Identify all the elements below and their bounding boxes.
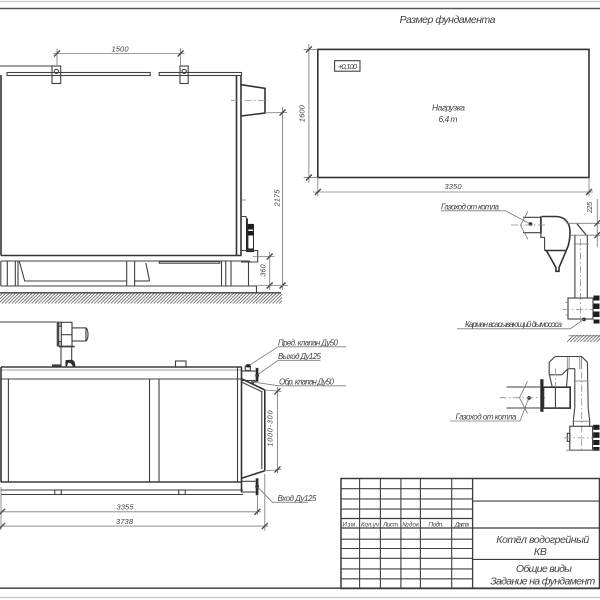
svg-text:Котёл водогрейный: Котёл водогрейный (496, 534, 589, 546)
svg-text:Кол.уч: Кол.уч (361, 521, 380, 528)
svg-text:3350: 3350 (445, 182, 463, 191)
svg-text:Вход Ду125: Вход Ду125 (278, 494, 318, 503)
svg-text:Лист: Лист (382, 521, 398, 528)
svg-text:6,4 т: 6,4 т (439, 114, 458, 124)
svg-text:1500: 1500 (112, 45, 130, 54)
svg-text:Карман всасывающий дымососа: Карман всасывающий дымососа (465, 320, 563, 329)
svg-text:1000-300: 1000-300 (268, 410, 275, 446)
svg-text:Изм.: Изм. (343, 521, 358, 528)
svg-text:Пред. клапан Ду50: Пред. клапан Ду50 (278, 338, 339, 347)
svg-text:Общие виды: Общие виды (516, 563, 572, 575)
svg-text:Размер фундамента: Размер фундамента (400, 14, 496, 26)
svg-text:Газоход от котла: Газоход от котла (441, 202, 500, 211)
svg-text:Газоход от котла: Газоход от котла (456, 412, 518, 421)
svg-text:Выход Ду125: Выход Ду125 (278, 352, 322, 361)
svg-text:3355: 3355 (117, 503, 135, 512)
svg-text:2175: 2175 (273, 189, 282, 208)
svg-text:225: 225 (587, 202, 594, 214)
svg-text:Задание на фундамент: Задание на фундамент (490, 576, 595, 588)
svg-text:Дата: Дата (454, 521, 470, 528)
svg-text:Нагрузка: Нагрузка (432, 103, 465, 113)
svg-text:360: 360 (261, 264, 268, 276)
svg-text:3738: 3738 (116, 517, 134, 526)
svg-text:КВ: КВ (534, 546, 547, 558)
svg-text:1600: 1600 (298, 104, 307, 122)
svg-text:Обр. клапан Ду50: Обр. клапан Ду50 (279, 377, 335, 386)
svg-text:Подп.: Подп. (429, 521, 444, 528)
svg-text:+0,100: +0,100 (338, 62, 358, 71)
svg-text:№док: №док (402, 521, 420, 528)
